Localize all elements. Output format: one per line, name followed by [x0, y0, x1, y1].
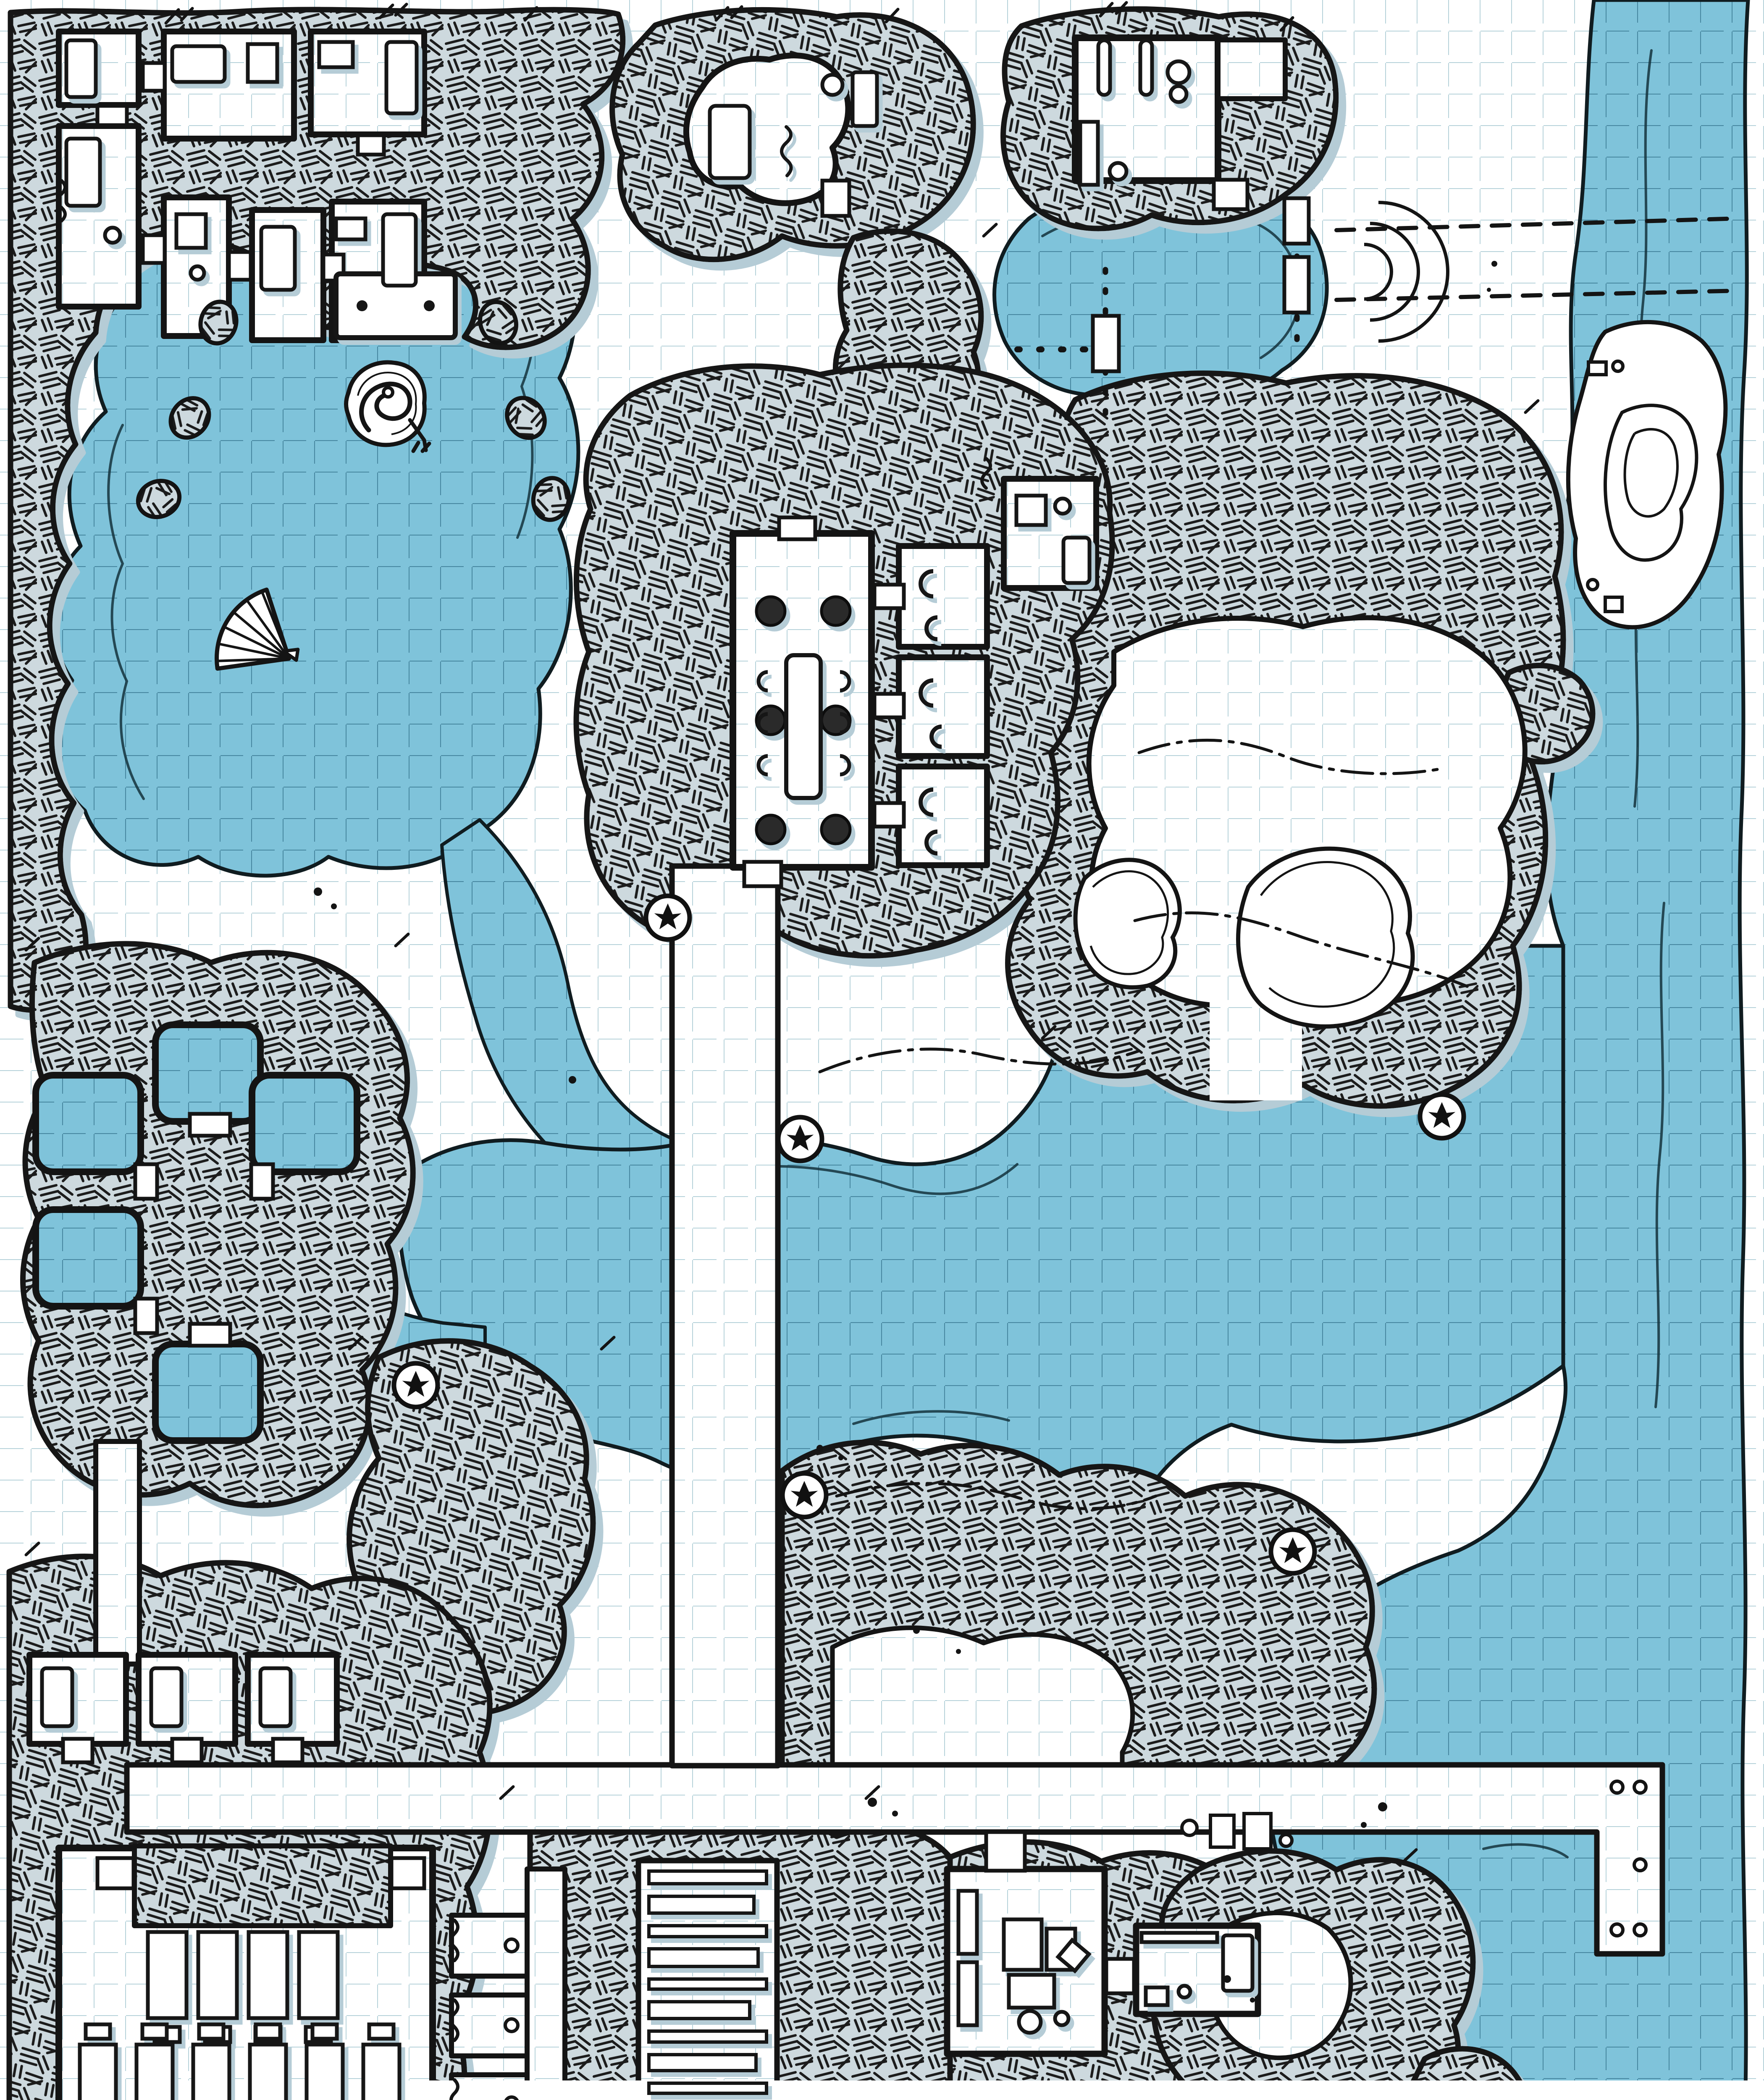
stool-icon — [1110, 163, 1126, 180]
bed-icon — [249, 1932, 287, 2018]
bed-icon — [386, 42, 417, 113]
crate-icon — [1146, 1987, 1168, 2005]
star-marker-icon — [1271, 1530, 1315, 1573]
pier-post-icon — [1634, 1859, 1646, 1871]
door — [991, 2096, 1015, 2100]
stool-icon — [822, 75, 843, 95]
pillar-icon — [756, 597, 785, 625]
door — [1214, 180, 1247, 209]
door — [874, 803, 904, 827]
screen-icon — [1080, 122, 1098, 185]
shelf-icon — [958, 1891, 977, 1954]
door — [143, 63, 165, 91]
statue-icon — [1168, 61, 1189, 83]
table-icon — [248, 44, 277, 82]
pole-icon — [1140, 40, 1152, 95]
pier-post-icon — [1634, 1924, 1646, 1936]
crate-icon — [1004, 1919, 1042, 1970]
plank-icon — [1093, 316, 1119, 371]
pier-post-icon — [1634, 1781, 1646, 1793]
privy-corridor — [527, 1869, 565, 2100]
door — [1106, 1959, 1134, 1993]
door — [986, 1832, 1025, 1871]
bed-icon — [363, 2045, 399, 2100]
crate-icon — [1009, 1975, 1054, 2008]
door — [251, 1164, 273, 1199]
door — [190, 1114, 230, 1136]
door — [874, 694, 904, 717]
bed-icon — [80, 2045, 116, 2100]
door — [358, 135, 384, 155]
star-marker-icon — [778, 1117, 822, 1161]
great-table-icon — [786, 655, 821, 798]
door — [97, 106, 127, 125]
pillow-icon — [86, 2024, 110, 2039]
bed-icon — [66, 40, 96, 97]
door — [143, 235, 165, 263]
bed-icon — [151, 1668, 181, 1726]
door — [190, 1324, 230, 1346]
map-canvas: 1 square = 5 feet — [0, 0, 1764, 2100]
bed-icon — [42, 1668, 72, 1726]
star-marker-icon — [782, 1473, 826, 1517]
cell — [899, 657, 987, 756]
bed-icon — [383, 214, 416, 286]
table-icon — [853, 72, 877, 126]
pool-chamber — [155, 1025, 260, 1121]
pillow-icon — [369, 2024, 394, 2039]
star-marker-icon — [1420, 1095, 1464, 1138]
stool-icon — [1179, 1986, 1190, 1998]
pillar-icon — [756, 815, 785, 844]
dungeon-map: 1 square = 5 feet — [0, 0, 1764, 2100]
plank-stairs-icon — [649, 1871, 766, 2100]
pillow-icon — [142, 2024, 167, 2039]
stool-icon — [105, 228, 120, 243]
closet — [1218, 40, 1285, 99]
door — [172, 1739, 202, 1762]
bed-icon — [299, 1932, 338, 2018]
table-icon — [319, 42, 353, 67]
barrel-icon — [1055, 2012, 1068, 2025]
table-icon — [176, 214, 206, 248]
door — [273, 1739, 302, 1762]
star-marker-icon — [394, 1363, 438, 1407]
pillow-icon — [312, 2024, 337, 2039]
door — [874, 585, 904, 608]
pool-chamber — [155, 1344, 260, 1441]
cell — [899, 546, 987, 647]
door — [822, 181, 849, 216]
star-marker-icon — [646, 896, 690, 940]
pillow-icon — [256, 2024, 280, 2039]
bed-icon — [193, 2045, 229, 2100]
door — [744, 862, 781, 886]
shelf-icon — [958, 1962, 977, 2025]
stool-icon — [191, 266, 204, 280]
bed-icon — [261, 227, 295, 290]
plank-icon — [1284, 198, 1309, 244]
crate-icon — [336, 218, 365, 239]
bed-icon — [250, 2045, 286, 2100]
bed-icon — [710, 106, 750, 178]
pillar-icon — [822, 597, 850, 625]
stool-icon — [1055, 499, 1070, 514]
privy-alcove — [451, 2075, 527, 2100]
door — [779, 517, 815, 539]
pole-icon — [1098, 40, 1110, 95]
plank-icon — [1284, 257, 1309, 312]
pool-chamber — [36, 1210, 141, 1306]
pier-post-icon — [1611, 1924, 1623, 1936]
bed-icon — [148, 1932, 186, 2018]
pillow-icon — [199, 2024, 223, 2039]
door — [135, 1299, 157, 1333]
bed-icon — [1063, 538, 1089, 583]
bed-icon — [66, 139, 100, 206]
statue-icon — [1171, 86, 1186, 102]
door — [229, 252, 251, 280]
main-corridor — [672, 866, 778, 1766]
cell — [899, 766, 987, 865]
bed-icon — [260, 1668, 291, 1726]
pool-chamber — [36, 1075, 141, 1172]
barrel-icon — [1019, 2011, 1041, 2033]
door — [63, 1739, 92, 1762]
door — [135, 1164, 157, 1199]
door — [97, 1858, 134, 1888]
bed-icon — [172, 46, 225, 82]
shelf-icon — [1142, 1933, 1217, 1942]
south-pocket — [832, 1628, 1133, 1770]
barracks-rubble-block — [134, 1846, 391, 1926]
table-icon — [1016, 496, 1046, 525]
door — [391, 1858, 424, 1888]
pool-chamber — [252, 1075, 357, 1172]
pier-post-icon — [1611, 1781, 1623, 1793]
pillar-icon — [822, 815, 850, 844]
bed-icon — [136, 2045, 173, 2100]
west-corridor — [96, 1441, 139, 1664]
bed-icon — [198, 1932, 237, 2018]
bed-icon — [307, 2045, 343, 2100]
